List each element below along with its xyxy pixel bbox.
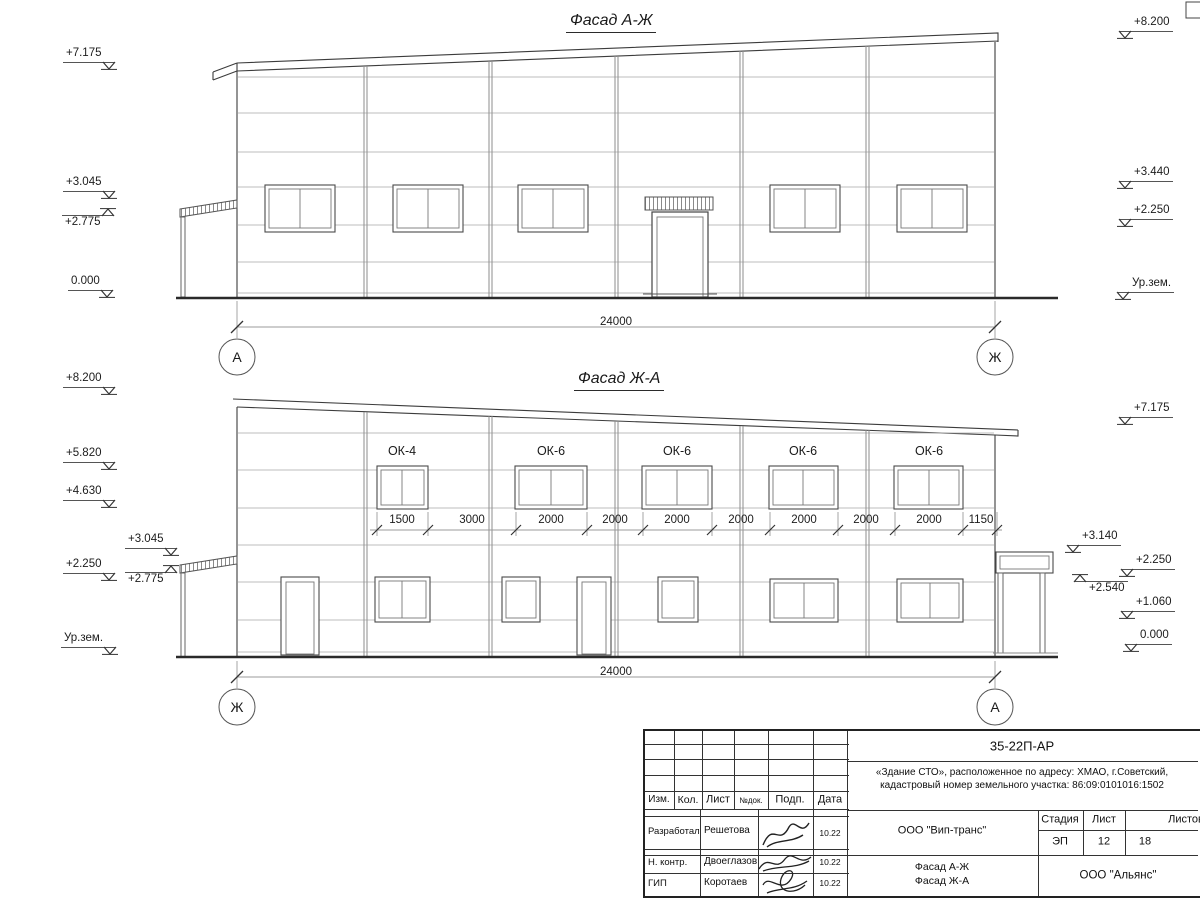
elevation-mark: +2.250	[63, 558, 114, 574]
elevation-arrow-icon	[1117, 30, 1133, 39]
dimension-label: 2000	[538, 514, 564, 526]
elevation-arrow-icon	[1072, 574, 1088, 583]
elevation-mark: +1.060	[1122, 596, 1175, 612]
dimension-label: 3000	[459, 514, 485, 526]
row-role: Разработал	[648, 827, 700, 837]
elevation-mark: +3.045	[125, 533, 176, 549]
dimension-label: 2000	[791, 514, 817, 526]
window-type-label: ОК-4	[388, 444, 416, 458]
row-role: Н. контр.	[648, 858, 687, 868]
dimension-label: 1150	[969, 514, 994, 526]
row-role: ГИП	[648, 879, 667, 889]
elevation-arrow-icon	[1115, 291, 1131, 300]
dimension-label: 1500	[389, 514, 415, 526]
elevation-mark: +7.175	[63, 47, 114, 63]
elevation-arrow-icon	[101, 499, 117, 508]
elevation-mark: +3.440	[1120, 166, 1173, 182]
sheets-total: 18	[1139, 837, 1151, 848]
sheets-label: Листов	[1168, 815, 1200, 826]
elevation-arrow-icon	[1119, 568, 1135, 577]
elevation-mark: +2.250	[1122, 554, 1175, 570]
elevation-mark: +2.540	[1075, 581, 1128, 597]
row-date: 10.22	[819, 858, 840, 867]
axis-marker: А	[219, 339, 255, 375]
elevation-mark: +8.200	[63, 372, 114, 388]
stage-label: Стадия	[1041, 815, 1079, 826]
elevation-arrow-icon	[163, 565, 179, 574]
window-type-label: ОК-6	[537, 444, 565, 458]
row-name: Двоеглазов	[704, 857, 757, 867]
col-header-kol: Кол.	[678, 795, 699, 806]
elevation-arrow-icon	[1065, 544, 1081, 553]
axis-marker: А	[977, 689, 1013, 725]
elevation-arrow-icon	[163, 547, 179, 556]
elevation-arrow-icon	[101, 461, 117, 470]
elevation-mark: +2.775	[125, 572, 176, 588]
project-description-line1: «Здание СТО», расположенное по адресу: Х…	[876, 768, 1168, 778]
dimension-label: 24000	[600, 666, 632, 678]
elevation-mark: +8.200	[1120, 16, 1173, 32]
elevation-mark: +4.630	[63, 485, 114, 501]
row-date: 10.22	[819, 879, 840, 888]
elevation-arrow-icon	[101, 61, 117, 70]
elevation-arrow-icon	[99, 289, 115, 298]
row-name: Коротаев	[704, 878, 747, 888]
elevation-mark: +2.250	[1120, 204, 1173, 220]
dimension-label: 2000	[853, 514, 879, 526]
elevation-arrow-icon	[101, 386, 117, 395]
dimension-label: 2000	[728, 514, 754, 526]
axis-marker: Ж	[977, 339, 1013, 375]
window-type-label: ОК-6	[789, 444, 817, 458]
elevation-arrow-icon	[102, 646, 118, 655]
sheet-number: 12	[1098, 837, 1110, 848]
elevation-mark: +5.820	[63, 447, 114, 463]
elevation-arrow-icon	[1117, 218, 1133, 227]
elevation-arrow-icon	[1117, 180, 1133, 189]
dimension-label: 2000	[916, 514, 942, 526]
row-date: 10.22	[819, 829, 840, 838]
drawing-sheet: { "sheet": { "facade_top": { "title": "Ф…	[0, 0, 1200, 900]
elevation-arrow-icon	[101, 190, 117, 199]
elevation-mark: +7.175	[1120, 402, 1173, 418]
stage-value: ЭП	[1052, 837, 1068, 848]
col-header-data: Дата	[818, 795, 842, 806]
elevation-arrow-icon	[100, 208, 116, 217]
title-block: Изм. Кол. Лист №док. Подп. Дата Разработ…	[643, 729, 1200, 898]
elevation-arrow-icon	[1119, 610, 1135, 619]
col-header-list: Лист	[706, 795, 730, 806]
elevation-arrow-icon	[101, 572, 117, 581]
facade-title-bottom: Фасад Ж-А	[574, 370, 664, 391]
sheet-name-line2: Фасад Ж-А	[915, 876, 969, 887]
window-type-label: ОК-6	[915, 444, 943, 458]
elevation-arrow-icon	[1123, 643, 1139, 652]
dimension-label: 24000	[600, 316, 632, 328]
facade-title-top: Фасад А-Ж	[566, 12, 656, 33]
signature	[757, 817, 813, 851]
elevation-mark: Ур.зем.	[61, 632, 115, 648]
elevation-mark: 0.000	[1126, 629, 1172, 645]
dimension-label: 2000	[602, 514, 628, 526]
sheet-label: Лист	[1092, 815, 1116, 826]
col-header-izm: Изм.	[648, 795, 669, 805]
axis-marker: Ж	[219, 689, 255, 725]
elevation-mark: +3.140	[1068, 530, 1121, 546]
signature	[755, 851, 817, 897]
elevation-mark: 0.000	[68, 275, 112, 291]
dimension-label: 2000	[664, 514, 690, 526]
sheet-name-line1: Фасад А-Ж	[915, 862, 969, 873]
project-description-line2: кадастровый номер земельного участка: 86…	[880, 781, 1164, 791]
col-header-podp: Подп.	[775, 795, 804, 806]
designer-org: ООО "Альянс"	[1080, 870, 1157, 882]
col-header-ndoc: №док.	[739, 797, 762, 805]
elevation-mark: Ур.зем.	[1118, 277, 1174, 293]
elevation-mark: +3.045	[63, 176, 114, 192]
elevation-arrow-icon	[1117, 416, 1133, 425]
row-name: Решетова	[704, 826, 750, 836]
window-type-label: ОК-6	[663, 444, 691, 458]
elevation-mark: +2.775	[62, 215, 113, 231]
contractor-org: ООО "Вип-транс"	[898, 826, 986, 837]
doc-number: 35-22П-АР	[990, 740, 1054, 753]
